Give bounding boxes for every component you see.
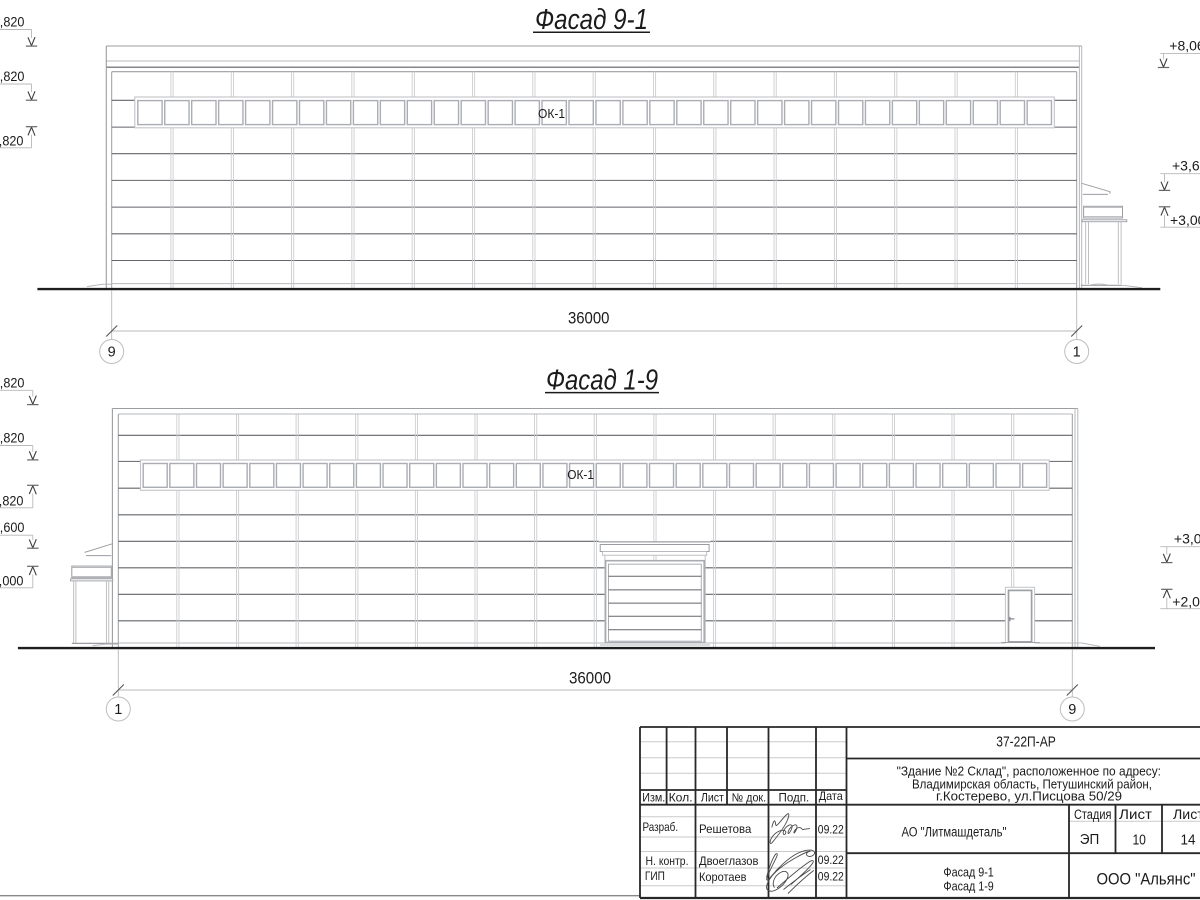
svg-text:14: 14 (1181, 832, 1196, 848)
svg-text:,000: ,000 (0, 573, 24, 589)
svg-text:ОК-1: ОК-1 (538, 106, 565, 121)
svg-text:Листов: Листов (1173, 807, 1200, 822)
svg-text:г.Костерево, ул.Писцова 50/29: г.Костерево, ул.Писцова 50/29 (936, 789, 1122, 804)
svg-text:Стадия: Стадия (1074, 807, 1112, 822)
svg-text:9: 9 (108, 345, 116, 361)
svg-text:+3,600: +3,600 (1172, 158, 1200, 174)
svg-text:АО "Литмашдеталь": АО "Литмашдеталь" (902, 824, 1007, 839)
svg-text:,820: ,820 (0, 493, 24, 509)
svg-text:9: 9 (1068, 702, 1076, 718)
svg-text:,820: ,820 (0, 68, 25, 84)
svg-text:37-22П-АР: 37-22П-АР (996, 735, 1056, 751)
svg-text:Фасад 9-1: Фасад 9-1 (535, 4, 648, 36)
svg-text:,820: ,820 (0, 430, 25, 446)
svg-text:Решетова: Решетова (699, 822, 752, 836)
svg-text:+3,000: +3,000 (1174, 531, 1200, 547)
svg-text:Изм.: Изм. (642, 790, 665, 804)
svg-text:,600: ,600 (0, 519, 25, 535)
svg-text:ОК-1: ОК-1 (567, 467, 594, 482)
svg-text:36000: 36000 (568, 309, 610, 327)
svg-text:Лист: Лист (701, 790, 725, 804)
svg-text:36000: 36000 (569, 669, 611, 687)
svg-text:Подп.: Подп. (779, 790, 810, 804)
svg-text:ЭП: ЭП (1080, 831, 1100, 848)
svg-text:Разраб.: Разраб. (643, 820, 679, 834)
svg-text:ГИП: ГИП (645, 869, 665, 883)
svg-text:09.22: 09.22 (818, 870, 844, 884)
svg-text:№ док.: № док. (732, 790, 767, 804)
svg-text:,820: ,820 (0, 14, 25, 30)
svg-text:09.22: 09.22 (818, 823, 844, 837)
svg-text:,820: ,820 (0, 374, 25, 390)
svg-text:Фасад 9-1: Фасад 9-1 (943, 866, 993, 880)
svg-text:1: 1 (114, 702, 122, 718)
svg-text:1: 1 (1073, 345, 1081, 361)
svg-text:Двоеглазов: Двоеглазов (699, 854, 758, 868)
svg-text:Дата: Дата (819, 789, 843, 803)
svg-text:Н. контр.: Н. контр. (646, 854, 689, 868)
svg-text:10: 10 (1132, 832, 1146, 848)
svg-text:09.22: 09.22 (818, 853, 844, 867)
svg-text:Фасад 1-9: Фасад 1-9 (546, 365, 658, 397)
svg-text:+2,000: +2,000 (1172, 594, 1200, 610)
svg-text:,820: ,820 (0, 133, 24, 149)
svg-text:ООО "Альянс": ООО "Альянс" (1097, 870, 1196, 888)
svg-text:+8,060: +8,060 (1169, 37, 1200, 53)
svg-text:Лист: Лист (1119, 807, 1152, 822)
svg-text:Фасад 1-9: Фасад 1-9 (943, 880, 993, 894)
svg-text:Кол.: Кол. (669, 790, 693, 804)
svg-text:Коротаев: Коротаев (699, 870, 747, 884)
svg-text:+3,000: +3,000 (1170, 212, 1200, 228)
